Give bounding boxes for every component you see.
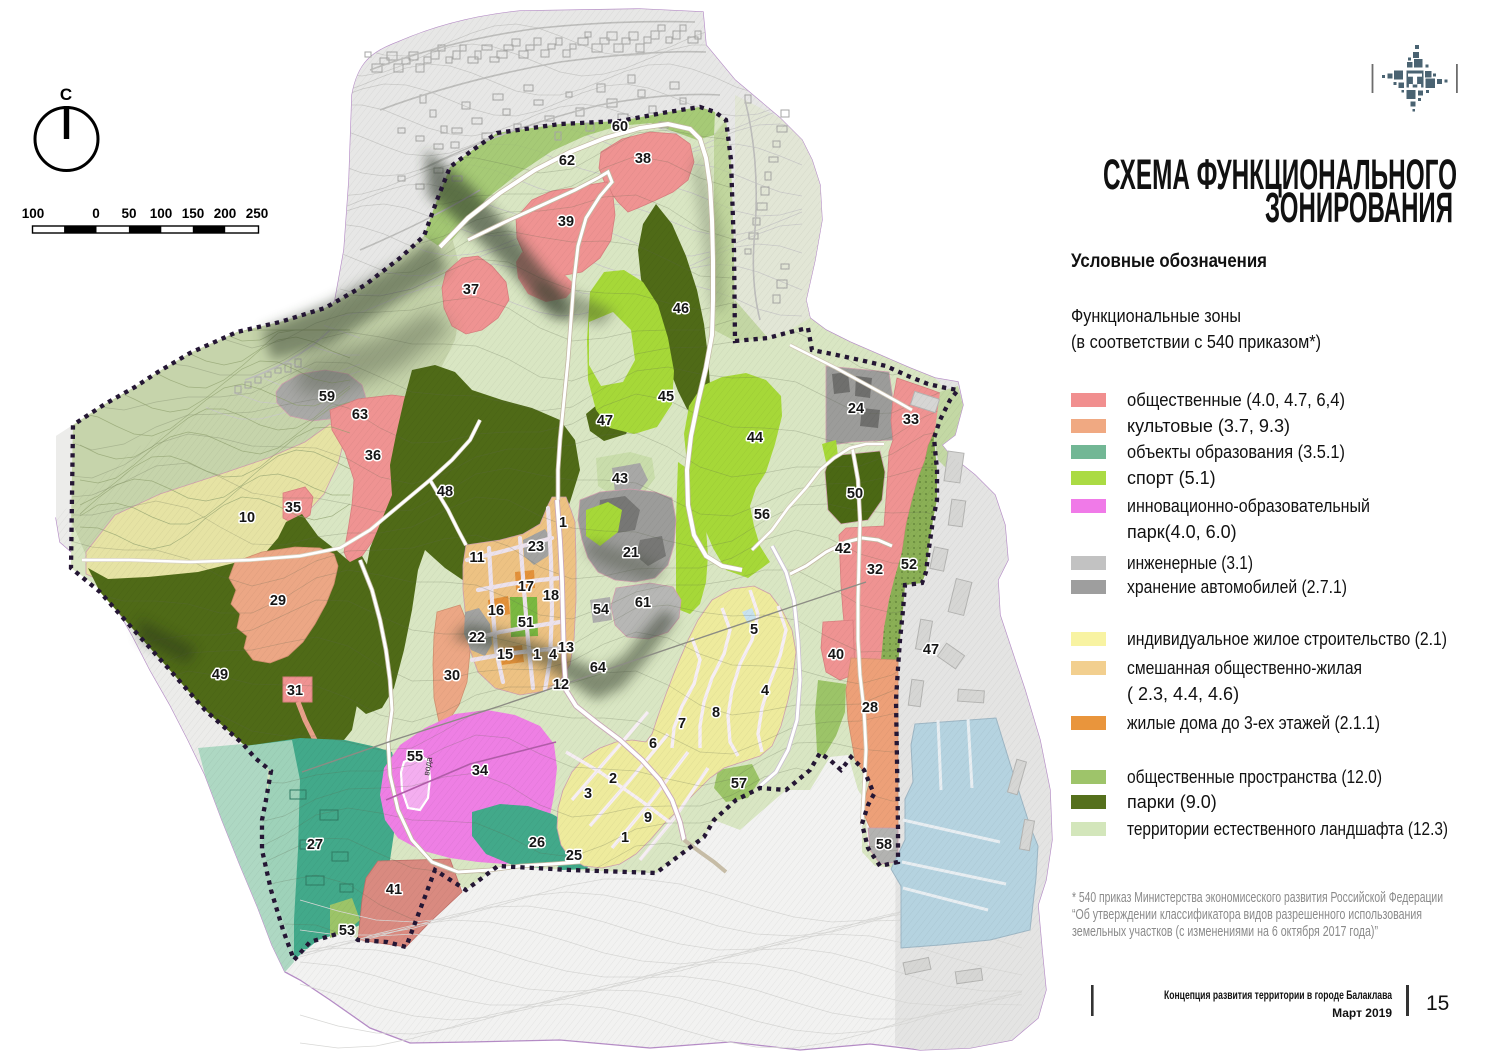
- svg-text:30: 30: [444, 668, 460, 684]
- svg-text:17: 17: [518, 579, 534, 595]
- svg-text:58: 58: [876, 837, 892, 853]
- svg-text:парки (9.0): парки (9.0): [1127, 792, 1217, 812]
- svg-text:16: 16: [488, 603, 504, 619]
- svg-text:Март 2019: Март 2019: [1332, 1006, 1392, 1020]
- svg-text:культовые (3.7, 9.3): культовые (3.7, 9.3): [1127, 416, 1290, 436]
- svg-text:( 2.3, 4.4, 4.6): ( 2.3, 4.4, 4.6): [1127, 684, 1239, 704]
- svg-text:37: 37: [463, 282, 479, 298]
- svg-text:40: 40: [828, 647, 844, 663]
- svg-text:41: 41: [386, 882, 402, 898]
- svg-text:54: 54: [593, 602, 609, 618]
- svg-text:31: 31: [287, 683, 303, 699]
- svg-text:47: 47: [597, 413, 613, 429]
- svg-text:18: 18: [543, 588, 559, 604]
- svg-text:4: 4: [549, 647, 557, 663]
- svg-text:33: 33: [903, 412, 919, 428]
- svg-text:10: 10: [239, 510, 255, 526]
- svg-text:250: 250: [246, 206, 269, 221]
- svg-text:46: 46: [673, 301, 689, 317]
- svg-text:34: 34: [472, 763, 488, 779]
- svg-text:51: 51: [518, 615, 534, 631]
- svg-text:“Об утверждении классификатора: “Об утверждении классификатора видов раз…: [1072, 907, 1422, 923]
- svg-text:3: 3: [584, 786, 592, 802]
- svg-text:парк(4.0, 6.0): парк(4.0, 6.0): [1127, 522, 1237, 542]
- svg-text:2: 2: [609, 771, 617, 787]
- svg-text:200: 200: [214, 206, 237, 221]
- svg-text:35: 35: [285, 500, 301, 516]
- svg-text:11: 11: [469, 550, 484, 566]
- svg-text:100: 100: [22, 206, 45, 221]
- svg-text:48: 48: [437, 484, 453, 500]
- svg-text:61: 61: [635, 595, 651, 611]
- svg-text:38: 38: [635, 151, 651, 167]
- svg-text:52: 52: [901, 557, 917, 573]
- svg-text:22: 22: [469, 630, 485, 646]
- svg-text:29: 29: [270, 593, 286, 609]
- svg-text:62: 62: [559, 153, 575, 169]
- svg-text:56: 56: [754, 507, 770, 523]
- svg-text:63: 63: [352, 407, 368, 423]
- svg-text:50: 50: [121, 206, 136, 221]
- svg-text:общественные пространства (12.: общественные пространства (12.0): [1127, 767, 1382, 787]
- svg-text:Функциональные зоны: Функциональные зоны: [1071, 306, 1241, 326]
- svg-text:1: 1: [621, 830, 629, 846]
- svg-text:12: 12: [553, 677, 569, 693]
- svg-text:спорт (5.1): спорт (5.1): [1127, 468, 1216, 488]
- svg-text:150: 150: [182, 206, 205, 221]
- svg-text:6: 6: [649, 736, 657, 752]
- svg-text:25: 25: [566, 848, 582, 864]
- svg-text:0: 0: [92, 206, 100, 221]
- svg-text:50: 50: [847, 486, 863, 502]
- svg-text:5: 5: [750, 622, 758, 638]
- svg-text:55: 55: [407, 749, 423, 765]
- svg-text:36: 36: [365, 448, 381, 464]
- svg-text:39: 39: [558, 214, 574, 230]
- svg-text:15: 15: [1426, 992, 1449, 1015]
- svg-text:* 540 приказ Министерства экон: * 540 приказ Министерства экономисеского…: [1072, 890, 1443, 906]
- svg-text:21: 21: [623, 545, 639, 561]
- svg-text:100: 100: [150, 206, 173, 221]
- svg-text:Концепция развития территории: Концепция развития территории в городе Б…: [1164, 988, 1392, 1002]
- svg-text:60: 60: [612, 119, 628, 135]
- svg-text:32: 32: [867, 562, 883, 578]
- svg-text:26: 26: [529, 835, 545, 851]
- svg-text:смешанная общественно-жилая: смешанная общественно-жилая: [1127, 658, 1362, 678]
- svg-text:42: 42: [835, 541, 851, 557]
- svg-text:общественные (4.0, 4.7, 6,4): общественные (4.0, 4.7, 6,4): [1127, 390, 1345, 410]
- svg-text:8: 8: [712, 705, 720, 721]
- svg-text:28: 28: [862, 700, 878, 716]
- svg-text:хранение автомобилей (2.7.1): хранение автомобилей (2.7.1): [1127, 577, 1347, 597]
- svg-text:7: 7: [678, 716, 686, 732]
- svg-text:жилые дома до 3-ех этажей (2.1: жилые дома до 3-ех этажей (2.1.1): [1127, 713, 1380, 733]
- svg-text:59: 59: [319, 389, 335, 405]
- svg-text:15: 15: [497, 647, 513, 663]
- svg-text:9: 9: [644, 810, 652, 826]
- svg-text:1: 1: [559, 515, 567, 531]
- svg-text:64: 64: [590, 660, 606, 676]
- svg-text:1: 1: [533, 647, 541, 663]
- svg-text:Условные обозначения: Условные обозначения: [1071, 251, 1267, 272]
- svg-text:43: 43: [612, 471, 628, 487]
- svg-text:(в соответствии с 540 приказом: (в соответствии с 540 приказом*): [1071, 332, 1321, 352]
- svg-text:23: 23: [528, 539, 544, 555]
- svg-text:индивидуальное жилое строитель: индивидуальное жилое строительство (2.1): [1127, 629, 1447, 649]
- svg-text:4: 4: [761, 683, 769, 699]
- svg-text:57: 57: [731, 776, 747, 792]
- svg-text:земельных участков (с изменени: земельных участков (с изменениями на 6 о…: [1072, 924, 1378, 940]
- svg-text:44: 44: [747, 430, 763, 446]
- svg-text:объекты образования (3.5.1): объекты образования (3.5.1): [1127, 442, 1345, 462]
- svg-text:27: 27: [307, 837, 323, 853]
- svg-text:ЗОНИРОВАНИЯ: ЗОНИРОВАНИЯ: [1265, 184, 1453, 232]
- svg-text:49: 49: [212, 667, 228, 683]
- svg-text:53: 53: [339, 923, 355, 939]
- svg-text:47: 47: [923, 642, 939, 658]
- svg-text:13: 13: [558, 640, 574, 656]
- svg-text:24: 24: [848, 401, 864, 417]
- svg-text:инженерные (3.1): инженерные (3.1): [1127, 553, 1253, 573]
- svg-text:территории естественного ландш: территории естественного ландшафта (12.3…: [1127, 819, 1448, 839]
- svg-text:45: 45: [658, 389, 674, 405]
- svg-text:С: С: [60, 85, 72, 104]
- svg-text:инновационно-образовательный: инновационно-образовательный: [1127, 496, 1370, 516]
